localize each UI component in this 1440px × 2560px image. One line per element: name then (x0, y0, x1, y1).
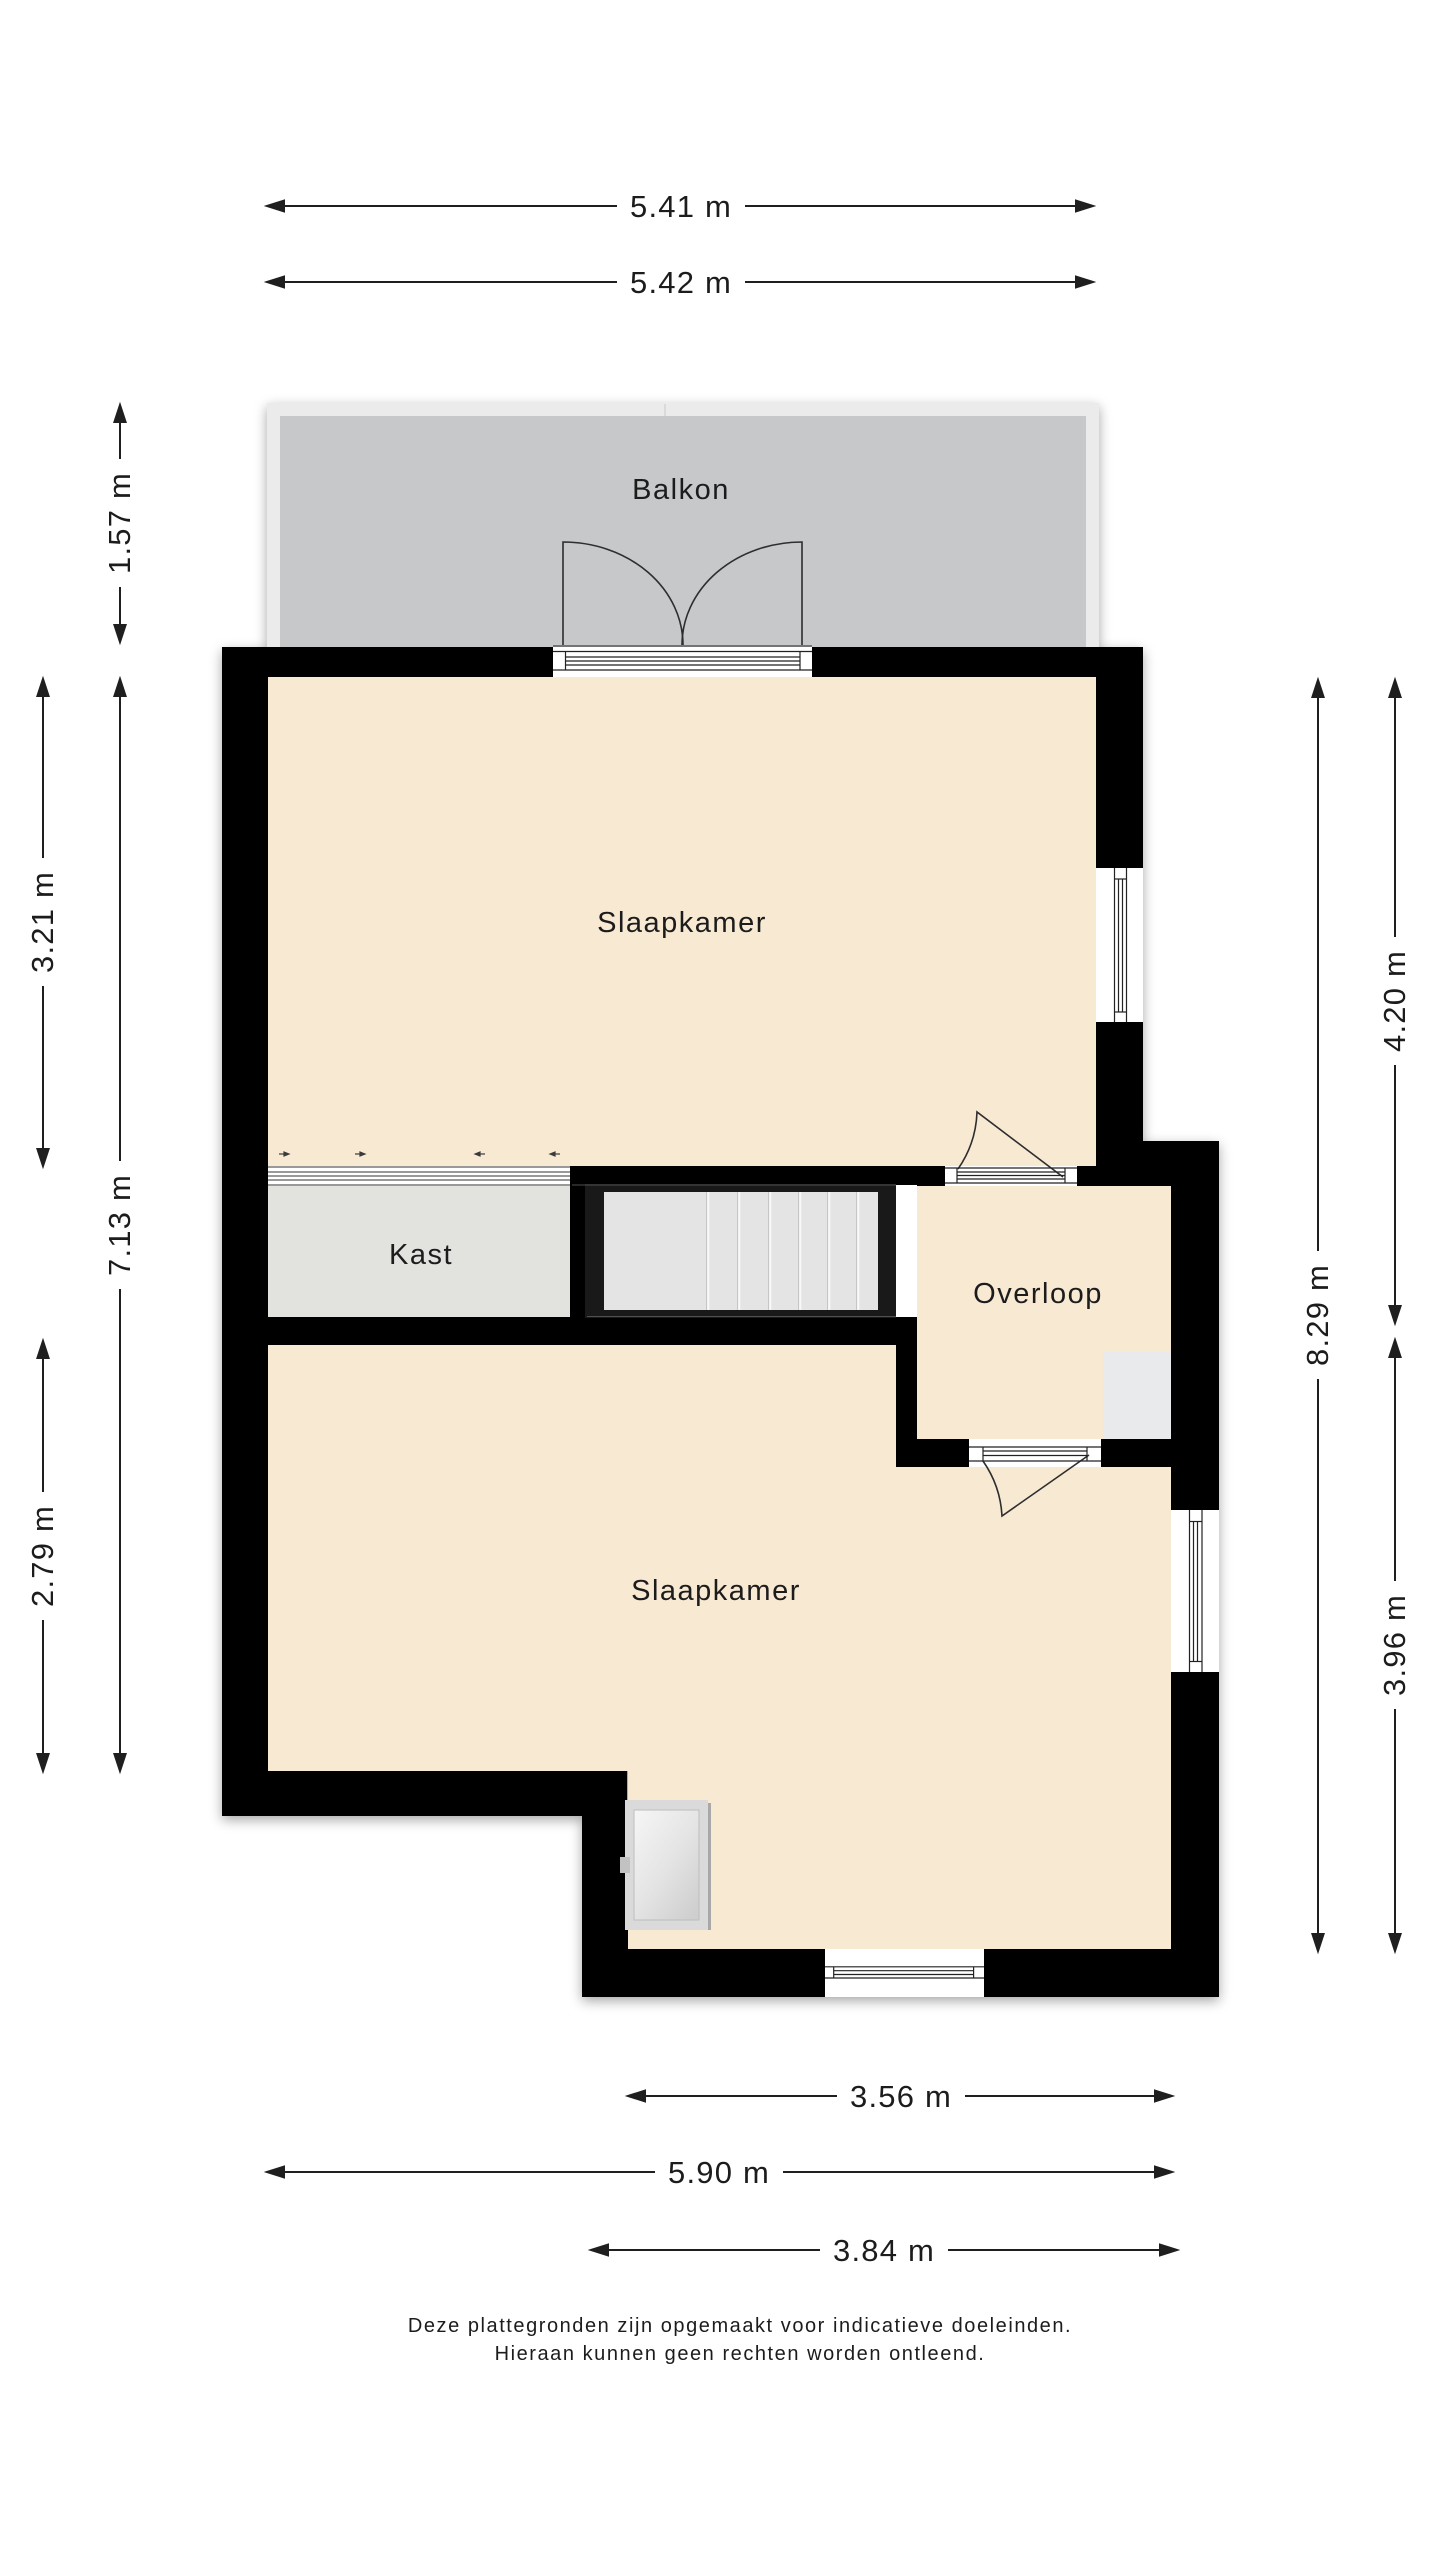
svg-text:Hieraan kunnen geen rechten wo: Hieraan kunnen geen rechten worden ontle… (495, 2343, 986, 2365)
svg-text:1.57 m: 1.57 m (102, 472, 137, 574)
svg-text:Kast: Kast (389, 1239, 453, 1271)
svg-text:7.13 m: 7.13 m (102, 1174, 137, 1276)
svg-text:4.20 m: 4.20 m (1377, 950, 1412, 1052)
svg-text:Slaapkamer: Slaapkamer (597, 907, 767, 939)
svg-text:3.96 m: 3.96 m (1377, 1594, 1412, 1696)
svg-text:Balkon: Balkon (632, 474, 730, 506)
svg-text:Slaapkamer: Slaapkamer (631, 1575, 801, 1607)
svg-text:Deze plattegronden zijn opgema: Deze plattegronden zijn opgemaakt voor i… (408, 2315, 1072, 2337)
svg-text:5.90 m: 5.90 m (668, 2155, 770, 2190)
svg-text:2.79 m: 2.79 m (25, 1505, 60, 1607)
svg-text:8.29 m: 8.29 m (1300, 1264, 1335, 1366)
svg-text:3.84 m: 3.84 m (833, 2233, 935, 2268)
svg-text:5.42 m: 5.42 m (630, 265, 732, 300)
svg-text:3.56 m: 3.56 m (850, 2079, 952, 2114)
svg-text:5.41 m: 5.41 m (630, 189, 732, 224)
svg-text:Overloop: Overloop (973, 1278, 1103, 1310)
svg-text:3.21 m: 3.21 m (25, 871, 60, 973)
